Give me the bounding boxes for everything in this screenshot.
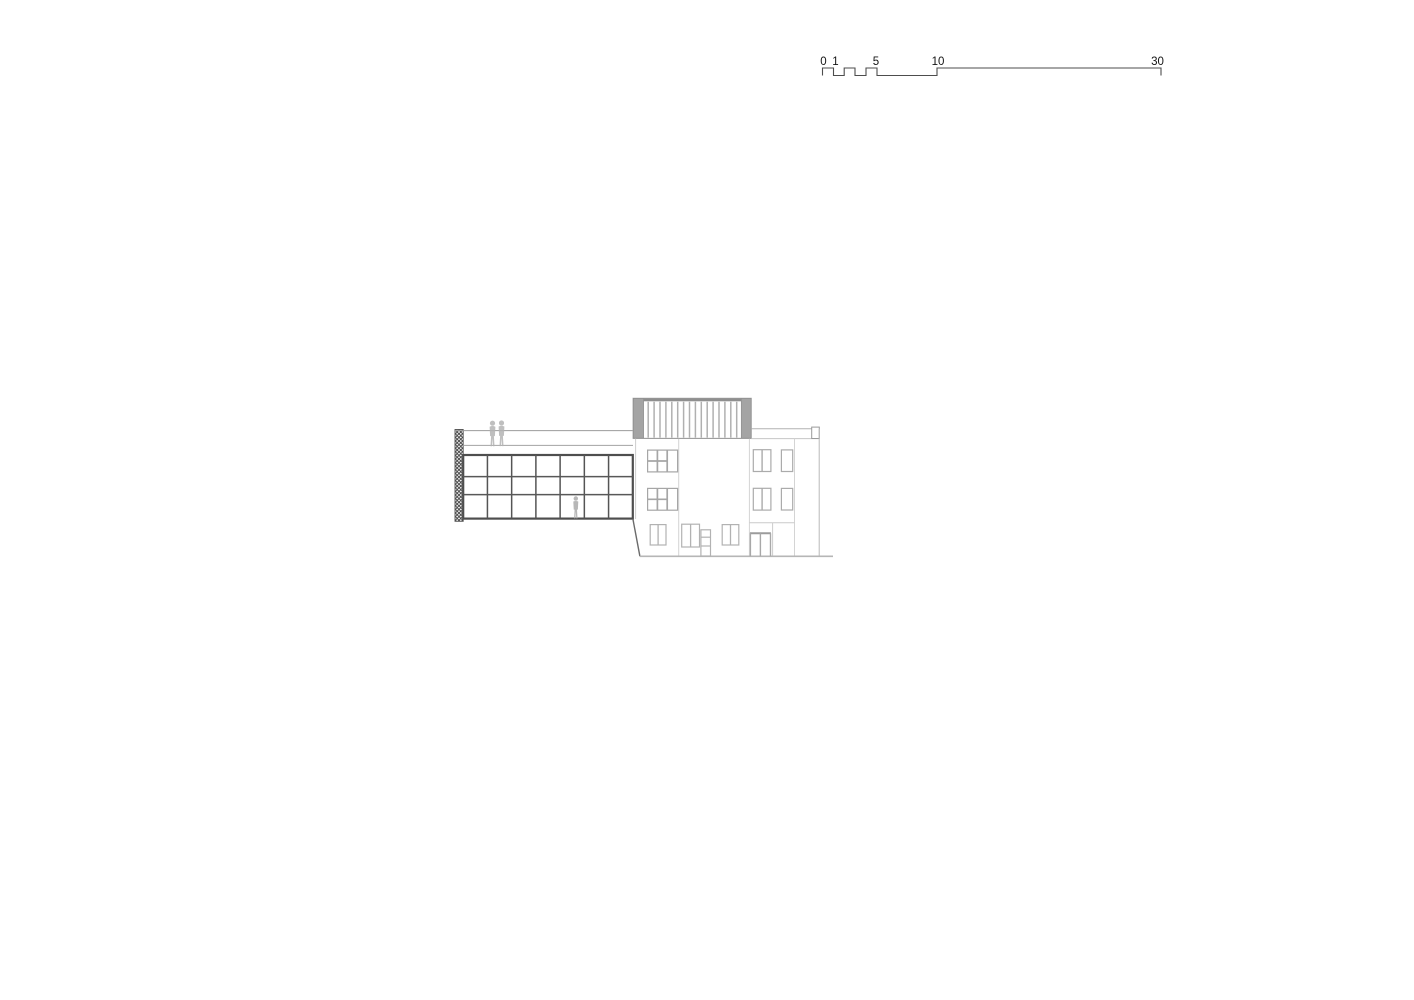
composite-window-lower (648, 488, 678, 510)
roof-figures (490, 420, 505, 446)
person-icon (499, 420, 505, 446)
composite-window-upper (648, 450, 678, 472)
scale-bar: 0 1 5 10 30 (820, 56, 1164, 76)
scale-label-10: 10 (932, 56, 945, 68)
single-window-upper (781, 450, 792, 472)
ground-slope-line (633, 519, 640, 556)
entrance-glazing-right (722, 525, 739, 545)
louver-right-panel (741, 398, 751, 438)
scale-label-0: 0 (820, 56, 826, 68)
right-wing (636, 427, 833, 556)
left-wing-curtain-wall (463, 455, 633, 519)
louver-left-panel (633, 398, 643, 438)
side-entrance-door (750, 533, 771, 556)
roof-louvers (633, 398, 751, 438)
pair-window-upper (753, 450, 771, 472)
person-icon (490, 421, 496, 447)
louver-top-band (633, 398, 751, 401)
section-hatch-strip (455, 430, 463, 522)
entrance-glazing-left (682, 524, 700, 547)
scale-bar-line (823, 68, 1162, 76)
louver-box (633, 398, 751, 438)
scale-label-30: 30 (1151, 56, 1164, 68)
elevation-drawing-page: 0 1 5 10 30 (0, 0, 1414, 1000)
pair-window-lower (753, 488, 771, 510)
roof-vent-box (812, 427, 820, 438)
left-wing (455, 430, 640, 557)
scale-label-5: 5 (873, 56, 879, 68)
scale-label-1: 1 (832, 56, 838, 68)
single-window-lower (781, 488, 792, 510)
elevation-drawing: 0 1 5 10 30 (0, 0, 1414, 1000)
ground-window-left (650, 525, 666, 545)
entrance-door-panel (701, 530, 711, 556)
